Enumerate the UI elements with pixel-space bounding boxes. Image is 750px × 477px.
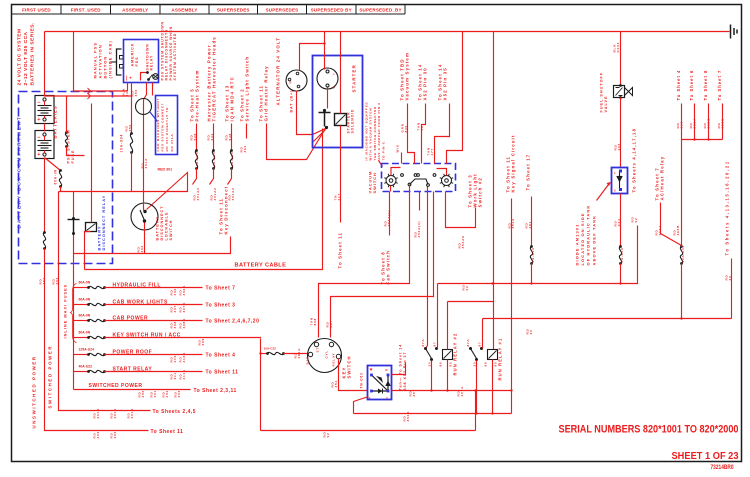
svg-text:RD 350 DIRECTLY TO: RD 350 DIRECTLY TO bbox=[165, 107, 169, 152]
svg-text:To Sheet 7: To Sheet 7 bbox=[206, 286, 236, 292]
svg-text:301A2: 301A2 bbox=[231, 187, 235, 200]
svg-text:OF HYDRAULIC TANK: OF HYDRAULIC TANK bbox=[586, 205, 591, 266]
svg-text:300: 300 bbox=[141, 390, 145, 398]
svg-text:SUPERSEDED BY: SUPERSEDED BY bbox=[311, 8, 352, 13]
svg-text:+: + bbox=[129, 77, 132, 82]
svg-text:ST: ST bbox=[316, 347, 320, 352]
svg-text:RED 301: RED 301 bbox=[158, 168, 173, 172]
svg-text:PSS SYSTEM CONNECT: PSS SYSTEM CONNECT bbox=[161, 103, 165, 152]
svg-text:C403: C403 bbox=[616, 42, 620, 53]
svg-text:To Sheets 4,13,15,16,20,21: To Sheets 4,13,15,16,20,21 bbox=[725, 160, 730, 255]
svg-text:(INSIDE CAB): (INSIDE CAB) bbox=[108, 40, 113, 78]
svg-text:301A2: 301A2 bbox=[196, 187, 200, 200]
svg-text:To Sheets 2,4,5: To Sheets 2,4,5 bbox=[153, 409, 197, 415]
svg-text:Service Light Switch: Service Light Switch bbox=[245, 56, 250, 122]
svg-text:To Sheet 11: To Sheet 11 bbox=[338, 232, 343, 269]
svg-text:UNSWITCHED POWER: UNSWITCHED POWER bbox=[32, 355, 37, 428]
svg-text:To Sheet 11: To Sheet 11 bbox=[206, 370, 239, 376]
svg-text:+: + bbox=[333, 86, 336, 91]
svg-text:BAT: BAT bbox=[306, 356, 310, 364]
svg-text:X52 Pin 35: X52 Pin 35 bbox=[443, 67, 448, 100]
svg-text:FUSE: FUSE bbox=[71, 149, 75, 163]
svg-text:−: − bbox=[37, 135, 40, 141]
svg-text:303: 303 bbox=[177, 390, 181, 398]
svg-text:301A: 301A bbox=[113, 408, 117, 419]
svg-text:301: 301 bbox=[153, 390, 157, 398]
svg-text:To Sheet 2,4,6,7,20: To Sheet 2,4,6,7,20 bbox=[206, 319, 260, 325]
svg-text:RD 301A.: RD 301A. bbox=[170, 132, 174, 151]
svg-text:B: B bbox=[386, 368, 388, 372]
svg-text:363: 363 bbox=[680, 121, 684, 129]
svg-text:354: 354 bbox=[334, 380, 338, 388]
svg-text:948: 948 bbox=[228, 133, 232, 141]
svg-text:2–12 VOLT 925 CCA: 2–12 VOLT 925 CCA bbox=[23, 31, 29, 85]
svg-text:87A: 87A bbox=[466, 339, 470, 347]
svg-text:FSS: FSS bbox=[135, 56, 139, 66]
svg-text:02: 02 bbox=[465, 285, 469, 290]
svg-text:W/U: W/U bbox=[396, 144, 400, 152]
svg-text:BATTERY: BATTERY bbox=[156, 216, 160, 240]
svg-text:301A2: 301A2 bbox=[213, 187, 217, 200]
svg-text:TIGERCAT Harvester Heads: TIGERCAT Harvester Heads bbox=[212, 36, 217, 121]
svg-text:30: 30 bbox=[473, 362, 477, 367]
svg-text:3A-C30: 3A-C30 bbox=[212, 151, 216, 166]
svg-text:125A-U24: 125A-U24 bbox=[79, 348, 95, 352]
svg-text:86: 86 bbox=[439, 362, 443, 367]
svg-text:SWITCH: SWITCH bbox=[372, 172, 377, 193]
svg-text:STARTER: STARTER bbox=[352, 64, 357, 92]
svg-text:308A: 308A bbox=[182, 318, 186, 329]
svg-text:362: 362 bbox=[243, 145, 247, 153]
svg-text:10A-C22: 10A-C22 bbox=[264, 347, 277, 351]
svg-text:363A: 363A bbox=[658, 225, 662, 236]
svg-text:TN-C63: TN-C63 bbox=[360, 372, 364, 388]
svg-text:838 X52 Pin 37: 838 X52 Pin 37 bbox=[403, 351, 407, 390]
svg-text:ASSEMBLY: ASSEMBLY bbox=[171, 8, 197, 13]
svg-text:LOCKABLE: LOCKABLE bbox=[165, 211, 169, 240]
svg-text:SUPERSEDES: SUPERSEDES bbox=[217, 8, 250, 13]
svg-text:DISCONNECT RELAY: DISCONNECT RELAY bbox=[101, 195, 106, 251]
svg-text:RUN RELAY #2: RUN RELAY #2 bbox=[453, 333, 458, 376]
svg-text:FIRST_USED: FIRST_USED bbox=[71, 8, 102, 13]
svg-text:RELAY: RELAY bbox=[150, 55, 154, 71]
svg-text:24 VOLT DC SYSTEM: 24 VOLT DC SYSTEM bbox=[17, 28, 23, 85]
svg-text:+: + bbox=[37, 152, 40, 158]
svg-text:353C: 353C bbox=[707, 118, 711, 129]
svg-text:306A: 306A bbox=[182, 285, 186, 296]
svg-text:310: 310 bbox=[173, 355, 177, 363]
svg-text:Tan— To Sheet 14: Tan— To Sheet 14 bbox=[399, 344, 403, 391]
svg-text:SWITCH: SWITCH bbox=[346, 355, 351, 378]
svg-text:INLINE MAXI FUSES: INLINE MAXI FUSES bbox=[63, 284, 68, 339]
svg-text:FIRST USED: FIRST USED bbox=[22, 8, 51, 13]
svg-text:29: 29 bbox=[420, 125, 424, 130]
svg-text:302: 302 bbox=[96, 431, 100, 439]
svg-text:87: 87 bbox=[478, 342, 482, 347]
svg-text:3A-C30: 3A-C30 bbox=[230, 151, 234, 166]
svg-text:403: 403 bbox=[617, 143, 621, 151]
svg-text:307A: 307A bbox=[182, 302, 186, 313]
svg-text:SWITCHED POWER: SWITCHED POWER bbox=[48, 345, 53, 409]
svg-text:301A: 301A bbox=[130, 408, 134, 419]
svg-text:02: 02 bbox=[326, 432, 330, 437]
svg-text:Switch #2: Switch #2 bbox=[478, 177, 483, 208]
svg-text:838: 838 bbox=[313, 318, 317, 326]
svg-text:∣: ∣ bbox=[126, 76, 128, 82]
svg-text:LOCATED ON SIDE: LOCATED ON SIDE bbox=[580, 212, 585, 265]
svg-text:301A: 301A bbox=[144, 158, 148, 169]
svg-text:SWITCHED POWER: SWITCHED POWER bbox=[89, 383, 143, 389]
svg-text:AC/Heat Relay: AC/Heat Relay bbox=[660, 156, 665, 201]
svg-text:5A-C14: 5A-C14 bbox=[531, 247, 535, 262]
svg-text:DIODE AM1301: DIODE AM1301 bbox=[575, 224, 580, 266]
svg-text:FOR MACHINES WITHOUT: FOR MACHINES WITHOUT bbox=[156, 98, 160, 152]
svg-text:310A: 310A bbox=[182, 352, 186, 363]
svg-text:To Sheet 7: To Sheet 7 bbox=[717, 70, 722, 101]
svg-text:481A: 481A bbox=[297, 348, 301, 359]
svg-text:657: 657 bbox=[412, 389, 416, 397]
svg-text:5A-C09: 5A-C09 bbox=[620, 247, 624, 262]
svg-text:311A: 311A bbox=[182, 369, 186, 379]
svg-text:417: 417 bbox=[337, 193, 341, 201]
svg-text:344: 344 bbox=[210, 133, 214, 141]
svg-text:349: 349 bbox=[125, 89, 129, 97]
svg-text:87: 87 bbox=[433, 342, 437, 347]
svg-text:To Sheet 4: To Sheet 4 bbox=[206, 353, 236, 359]
svg-text:SWITCH: SWITCH bbox=[169, 220, 173, 241]
svg-text:SUPERSEDES: SUPERSEDES bbox=[266, 8, 299, 13]
svg-text:To Sheet 4: To Sheet 4 bbox=[676, 70, 681, 101]
svg-text:60A-0N: 60A-0N bbox=[79, 331, 91, 335]
svg-text:407A: 407A bbox=[460, 386, 464, 397]
svg-text:ALTERNATOR 24 VOLT: ALTERNATOR 24 VOLT bbox=[276, 37, 281, 106]
svg-text:RUN RELAY #1: RUN RELAY #1 bbox=[498, 338, 503, 381]
svg-text:SHEET 1 OF 23: SHEET 1 OF 23 bbox=[672, 450, 739, 462]
svg-text:60A-0N: 60A-0N bbox=[79, 314, 91, 318]
svg-text:BATTERY CABLE: BATTERY CABLE bbox=[235, 263, 287, 269]
svg-text:A34: A34 bbox=[617, 218, 621, 226]
svg-text:Key Signal Circuit: Key Signal Circuit bbox=[511, 134, 516, 192]
svg-text:TO PIN 5.: TO PIN 5. bbox=[381, 140, 385, 160]
svg-text:73214BR0: 73214BR0 bbox=[711, 464, 734, 471]
svg-text:307: 307 bbox=[173, 305, 177, 313]
svg-text:350: 350 bbox=[128, 124, 132, 132]
svg-text:X52 Pin 30: X52 Pin 30 bbox=[423, 67, 428, 100]
svg-text:350: 350 bbox=[134, 89, 138, 97]
svg-text:304A: 304A bbox=[406, 411, 410, 422]
svg-text:To Sheet 11: To Sheet 11 bbox=[151, 429, 184, 435]
svg-text:20: 20 bbox=[728, 275, 732, 280]
svg-text:10A-U04: 10A-U04 bbox=[120, 134, 124, 153]
svg-text:IQAN MD4 RTC: IQAN MD4 RTC bbox=[230, 76, 235, 121]
svg-text:302: 302 bbox=[42, 277, 46, 285]
svg-text:306: 306 bbox=[173, 288, 177, 296]
svg-text:87A: 87A bbox=[421, 339, 425, 347]
svg-text:To Sheet 2,3,11: To Sheet 2,3,11 bbox=[194, 388, 237, 394]
svg-text:353A(1): 353A(1) bbox=[387, 210, 391, 227]
svg-text:To Sheet 3: To Sheet 3 bbox=[206, 303, 236, 309]
svg-text:DISCONNECT: DISCONNECT bbox=[160, 205, 164, 240]
svg-text:Grid Heater Relay: Grid Heater Relay bbox=[264, 65, 269, 121]
svg-text:60A-0N: 60A-0N bbox=[79, 281, 91, 285]
svg-text:SERIAL NUMBERS 820*1001 TO 820: SERIAL NUMBERS 820*1001 TO 820*2000 bbox=[559, 424, 739, 436]
svg-text:309: 309 bbox=[201, 338, 205, 346]
svg-text:+: + bbox=[37, 117, 40, 123]
svg-text:To Sheet 17: To Sheet 17 bbox=[526, 154, 531, 191]
svg-text:CYL: CYL bbox=[325, 350, 329, 358]
svg-text:60A-0N: 60A-0N bbox=[79, 298, 91, 302]
svg-text:354A: 354A bbox=[511, 218, 515, 229]
svg-text:SOLENOID: SOLENOID bbox=[351, 109, 355, 134]
svg-text:To Sheet 8: To Sheet 8 bbox=[703, 70, 708, 101]
svg-text:10A-C02: 10A-C02 bbox=[681, 245, 685, 262]
svg-text:−: − bbox=[333, 72, 336, 77]
svg-text:177: 177 bbox=[430, 148, 434, 156]
svg-text:BATTERIES: BATTERIES bbox=[53, 105, 58, 138]
svg-text:302: 302 bbox=[113, 431, 117, 439]
svg-text:PSS SYSTEM: PSS SYSTEM bbox=[67, 129, 71, 163]
svg-text:BATTERY BOX COMPARTMENT: BATTERY BOX COMPARTMENT bbox=[17, 115, 22, 228]
svg-text:To Sheets 4,14,17,18: To Sheets 4,14,17,18 bbox=[632, 128, 637, 193]
svg-text:308: 308 bbox=[173, 321, 177, 329]
svg-text:Vacuum System: Vacuum System bbox=[405, 52, 410, 101]
svg-text:311: 311 bbox=[173, 372, 177, 379]
svg-text:Pre-Heat System: Pre-Heat System bbox=[195, 70, 200, 122]
svg-text:3A-C30: 3A-C30 bbox=[195, 151, 199, 166]
svg-text:353A(3): 353A(3) bbox=[417, 221, 421, 238]
svg-text:302: 302 bbox=[140, 245, 144, 253]
svg-text:867: 867 bbox=[329, 320, 333, 328]
svg-text:BATTERIES IN SERIES.: BATTERIES IN SERIES. bbox=[30, 22, 36, 85]
svg-text:86: 86 bbox=[484, 362, 488, 367]
svg-text:830: 830 bbox=[404, 125, 408, 133]
svg-text:Fan Switch: Fan Switch bbox=[386, 250, 391, 285]
svg-text:−: − bbox=[37, 100, 40, 106]
svg-text:383A: 383A bbox=[693, 118, 697, 129]
svg-text:40A-U22: 40A-U22 bbox=[79, 365, 93, 369]
svg-text:A: A bbox=[369, 396, 371, 400]
svg-text:To Sheet 6: To Sheet 6 bbox=[689, 70, 694, 101]
svg-text:Key Disconnect: Key Disconnect bbox=[224, 186, 229, 235]
svg-text:528: 528 bbox=[193, 133, 197, 141]
svg-text:BAT (B+): BAT (B+) bbox=[290, 90, 294, 113]
svg-text:60A-IN: 60A-IN bbox=[54, 169, 58, 184]
svg-text:AMERICK: AMERICK bbox=[131, 43, 135, 67]
svg-text:RELAY: RELAY bbox=[332, 353, 336, 367]
svg-text:353A9: 353A9 bbox=[461, 235, 465, 248]
svg-text:FUEL SHUTOFF: FUEL SHUTOFF bbox=[600, 72, 604, 113]
svg-text:353D: 353D bbox=[721, 118, 725, 129]
svg-text:VALVE: VALVE bbox=[604, 95, 608, 112]
svg-text:481: 481 bbox=[528, 221, 532, 229]
svg-text:ASSEMBLY: ASSEMBLY bbox=[122, 8, 148, 13]
svg-text:363B: 363B bbox=[676, 225, 680, 236]
svg-text:SYSTEM ACTIVATED: SYSTEM ACTIVATED bbox=[173, 33, 177, 81]
svg-text:02: 02 bbox=[634, 217, 638, 222]
svg-text:302: 302 bbox=[165, 390, 169, 398]
svg-text:30: 30 bbox=[428, 362, 432, 367]
svg-text:303: 303 bbox=[55, 277, 59, 285]
svg-text:SUPERSEDED_BY: SUPERSEDED_BY bbox=[359, 8, 401, 13]
svg-text:20: 20 bbox=[529, 329, 533, 334]
svg-text:301A: 301A bbox=[96, 408, 100, 419]
svg-text:ABOVE DEF TANK: ABOVE DEF TANK bbox=[591, 215, 596, 266]
